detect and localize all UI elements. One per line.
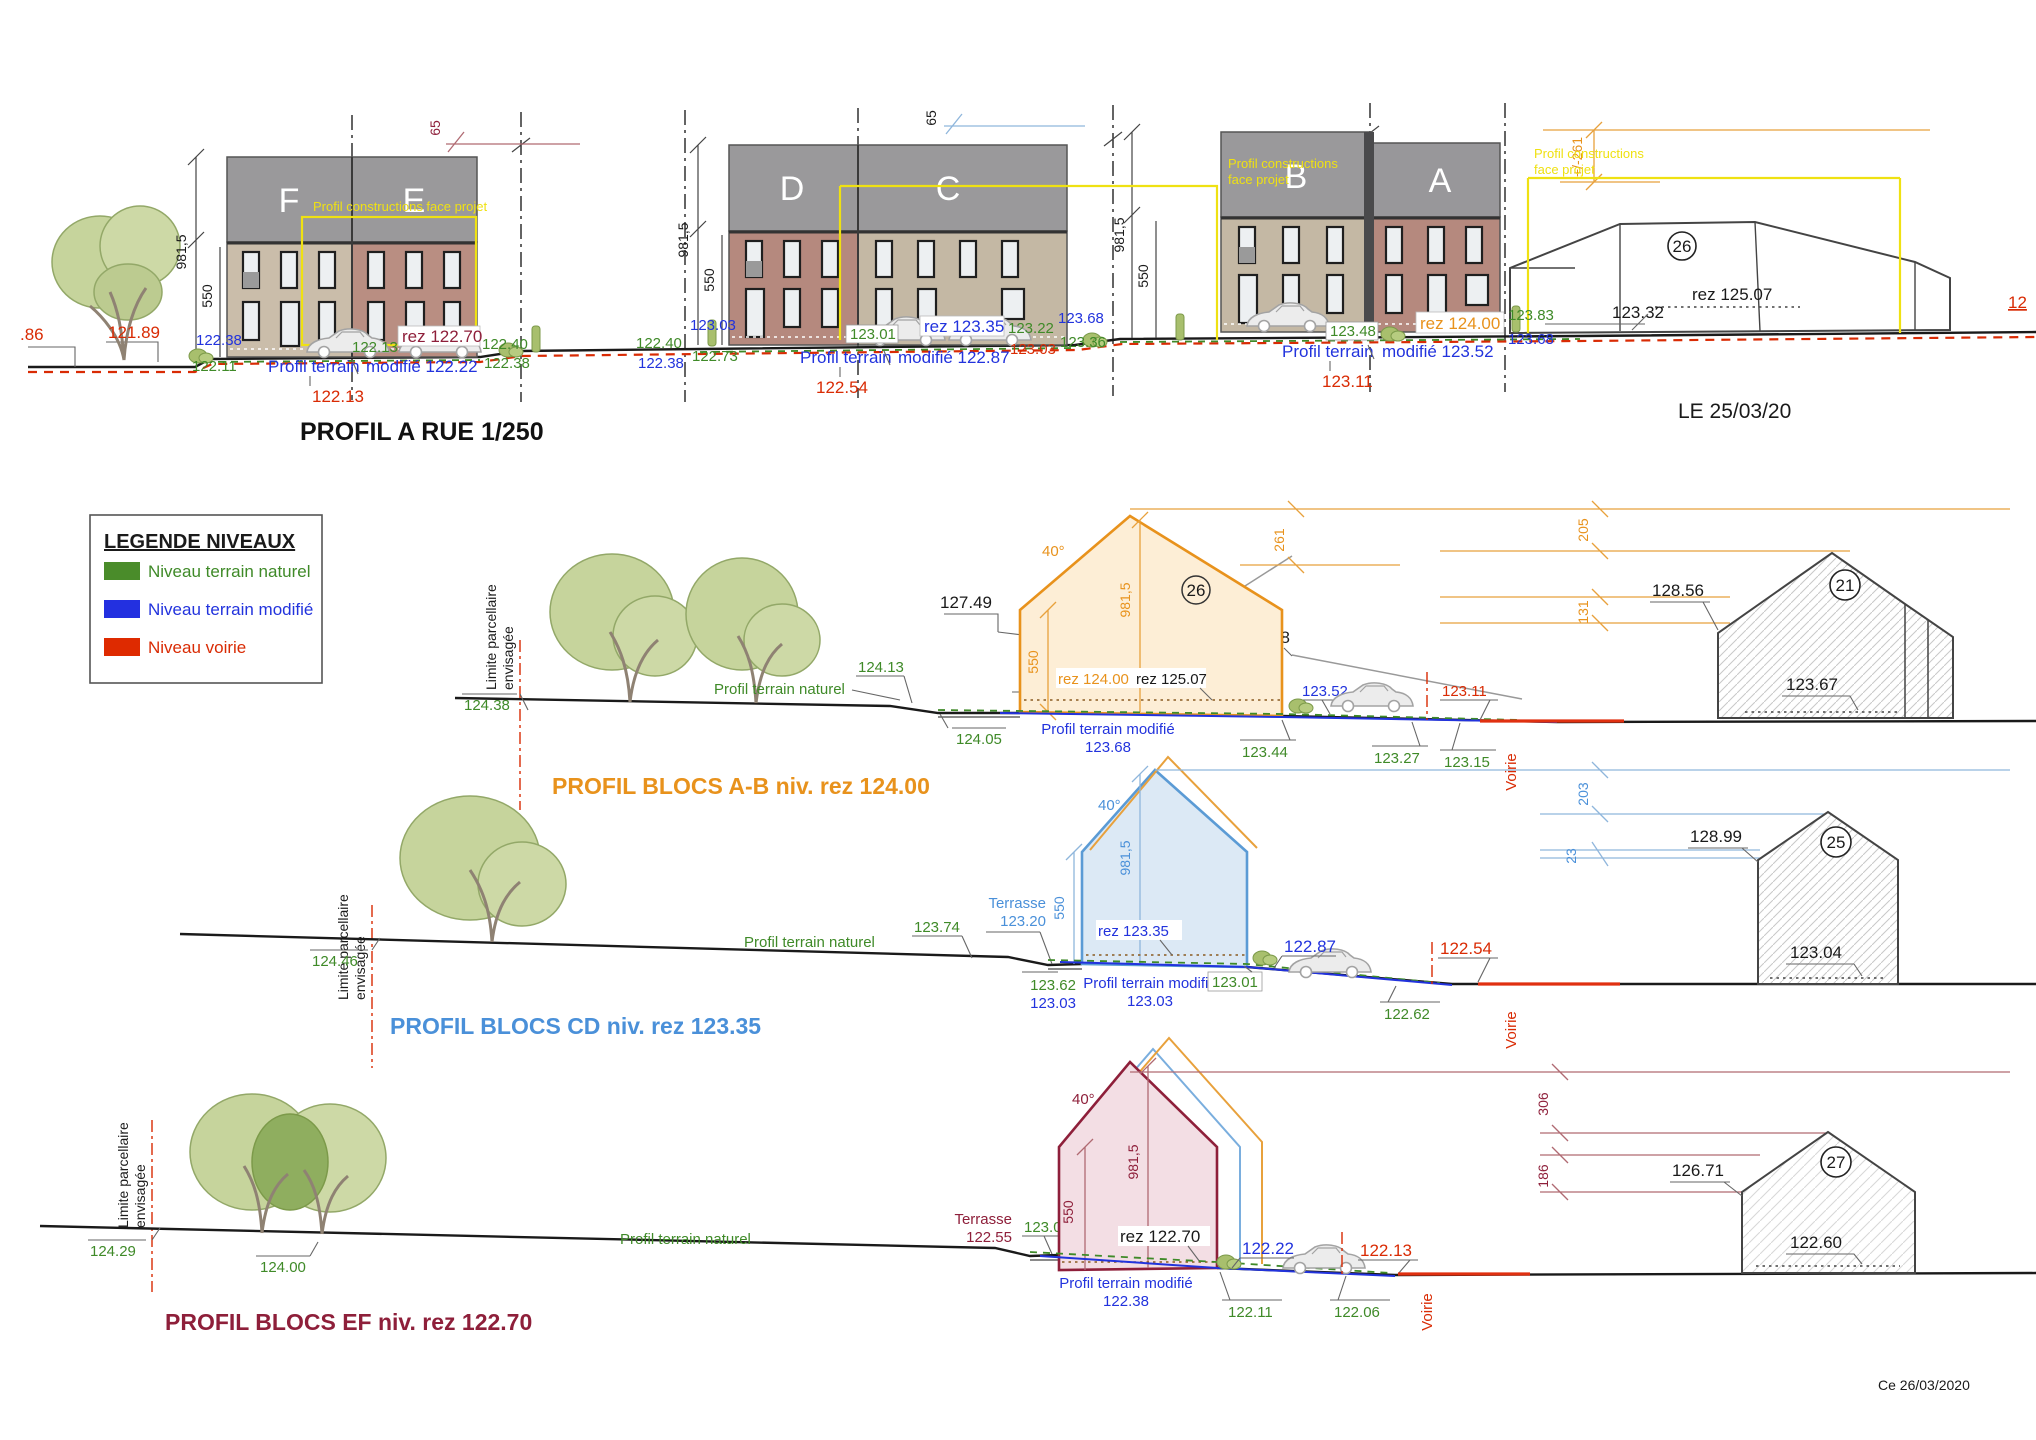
- svg-text:Terrasse: Terrasse: [988, 895, 1046, 912]
- svg-text:123.74: 123.74: [914, 919, 960, 936]
- lvl-123-11-ab: 123.11: [1440, 683, 1498, 720]
- rez-fe: rez 122.70: [398, 326, 482, 346]
- svg-text:261: 261: [1271, 528, 1287, 552]
- svg-text:203: 203: [1575, 782, 1591, 806]
- dim-dc: 981,5 550: [675, 137, 722, 345]
- svg-text:rez 123.35: rez 123.35: [924, 317, 1004, 336]
- lvl-121-89: 121.89: [108, 323, 160, 342]
- street-title: PROFIL A RUE 1/250: [300, 418, 544, 446]
- svg-text:124.13: 124.13: [858, 659, 904, 676]
- house-26-rez: rez 125.07: [1692, 285, 1772, 304]
- lvl-122-13-ef: 122.13: [1358, 1241, 1418, 1274]
- legend-swatch-voirie: [104, 638, 140, 656]
- profile-cd-title: PROFIL BLOCS CD niv. rez 123.35: [390, 1013, 761, 1039]
- dim-9815-dc: 981,5: [675, 222, 691, 257]
- house-ab-number: 26: [1187, 581, 1206, 600]
- profile-ab-title: PROFIL BLOCS A-B niv. rez 124.00: [552, 773, 930, 799]
- terrain-mod-ba-1: Profil terrain: [1282, 342, 1374, 361]
- construction-label-fe: Profil constructions face projet: [313, 199, 488, 214]
- house-ef: 40° 550 981,5 rez 122.70: [1059, 1038, 1262, 1270]
- legend-title: LEGENDE NIVEAUX: [104, 531, 296, 553]
- bush: [1289, 699, 1313, 713]
- svg-text:124.46: 124.46: [312, 953, 358, 970]
- profile-ab: Limite parcellaire envisagée 124.38 Prof…: [455, 501, 2036, 810]
- dim-550-cd: 550: [1051, 896, 1067, 920]
- svg-text:23: 23: [1563, 848, 1579, 864]
- lvl-123-83: 123.83: [1508, 307, 1554, 324]
- svg-text:face projet: face projet: [1228, 172, 1289, 187]
- tree-ab-1: [550, 554, 697, 702]
- dim-fe: 981,5 550: [173, 149, 220, 357]
- svg-text:123.03: 123.03: [1030, 995, 1076, 1012]
- house-26-number: 26: [1673, 237, 1692, 256]
- house-21: 21 128.56 123.67: [1650, 553, 1953, 718]
- profile-cd: Limite parcellaire envisagée 124.46 Prof…: [180, 757, 2036, 1068]
- car-ef: [1283, 1245, 1365, 1274]
- legend-swatch-modifie: [104, 600, 140, 618]
- legend-item-modifie: Niveau terrain modifié: [148, 600, 313, 619]
- legend-swatch-naturel: [104, 562, 140, 580]
- legend-item-voirie: Niveau voirie: [148, 638, 246, 657]
- terrain-mod-ba-2: modifié 123.52: [1382, 342, 1494, 361]
- svg-text:122.13: 122.13: [1360, 1241, 1412, 1260]
- lvl-124-05: 124.05: [940, 714, 1006, 748]
- voirie-ab: Voirie: [1503, 753, 1520, 791]
- svg-text:122.38: 122.38: [1103, 1293, 1149, 1310]
- svg-text:122.62: 122.62: [1384, 1006, 1430, 1023]
- svg-text:Profil terrain modifié: Profil terrain modifié: [1059, 1275, 1192, 1292]
- svg-text:123.01: 123.01: [850, 326, 896, 343]
- svg-text:306: 306: [1535, 1092, 1551, 1116]
- lvl-122-13-g: 122.13: [352, 339, 398, 356]
- lvl-123-74: 123.74: [912, 919, 972, 958]
- angle-ab: 40°: [1042, 543, 1065, 560]
- svg-text:Limite parcellaire: Limite parcellaire: [335, 894, 351, 1000]
- dim-550-fe: 550: [199, 284, 215, 308]
- lvl-123-27: 123.27: [1372, 722, 1428, 767]
- dim-65-fe: 65: [427, 120, 580, 152]
- svg-text:122.54: 122.54: [1440, 939, 1492, 958]
- terrain-modifie-cd: Profil terrain modifié 123.03: [1083, 975, 1216, 1010]
- dim-9815-fe: 981,5: [173, 234, 189, 269]
- svg-text:124.29: 124.29: [90, 1243, 136, 1260]
- svg-text:123.62: 123.62: [1030, 977, 1076, 994]
- house-ab: 40° 550 981,5 26 rez 124.00 rez 125.07: [1020, 512, 1282, 720]
- svg-text:123.44: 123.44: [1242, 744, 1288, 761]
- lvl-122-38-b: 122.38: [196, 332, 242, 349]
- lvl-123-44: 123.44: [1240, 720, 1296, 761]
- terrain-mod-fe-1: Profil terrain: [268, 357, 360, 376]
- construction-label-26: Profil constructions face projet: [1534, 146, 1644, 177]
- block-d-label: D: [780, 170, 805, 208]
- svg-text:122.11: 122.11: [1228, 1304, 1273, 1321]
- lvl-122-40-2: 122.40: [636, 335, 682, 352]
- block-a-label: A: [1429, 162, 1452, 200]
- svg-text:205: 205: [1575, 518, 1591, 542]
- house-25: 25 128.99 123.04: [1688, 812, 1898, 984]
- svg-text:122.55: 122.55: [966, 1229, 1012, 1246]
- lvl-122-13-r: 122.13: [312, 387, 364, 406]
- lvl-123-62-03: 123.62 123.03: [1022, 972, 1076, 1012]
- svg-text:rez 124.00: rez 124.00: [1420, 314, 1500, 333]
- terrain-mod-fe-2: modifié 122.22: [366, 357, 478, 376]
- rez-ba: rez 124.00: [1416, 312, 1504, 333]
- svg-text:123.27: 123.27: [1374, 750, 1420, 767]
- svg-text:face projet: face projet: [1534, 162, 1595, 177]
- building-dc: D C: [729, 145, 1067, 345]
- dim-9815-ab: 981,5: [1117, 582, 1133, 617]
- svg-text:Terrasse: Terrasse: [954, 1211, 1012, 1228]
- svg-text:Profil constructions: Profil constructions: [1228, 156, 1338, 171]
- profile-ef: Limite parcellaire envisagée 124.29 124.…: [40, 1038, 2036, 1335]
- lvl-123-15: 123.15: [1440, 723, 1496, 771]
- lvl-124-38: 124.38: [462, 694, 528, 714]
- lvl-124-29: 124.29: [88, 1228, 160, 1260]
- tree-cd: [400, 796, 566, 942]
- lvl-122-54: 122.54: [1438, 939, 1498, 982]
- lvl-124-00: 124.00: [256, 1242, 318, 1276]
- house-27-top: 126.71: [1672, 1161, 1724, 1180]
- terrasse-ef: Terrasse 122.55: [954, 1211, 1012, 1246]
- terrain-naturel-ab: Profil terrain naturel: [714, 681, 845, 698]
- house-21-top: 128.56: [1652, 581, 1704, 600]
- svg-text:Profil terrain modifié: Profil terrain modifié: [1041, 721, 1174, 738]
- svg-text:124.00: 124.00: [260, 1259, 306, 1276]
- lvl-123-01-cd: 123.01: [1208, 966, 1262, 991]
- lvl-cut: .86: [20, 325, 44, 344]
- svg-text:124.05: 124.05: [956, 731, 1002, 748]
- svg-text:123.03: 123.03: [1127, 993, 1173, 1010]
- shrub: [532, 326, 540, 352]
- dim-550-ba: 550: [1135, 264, 1151, 288]
- dim-ba: 981,5 550: [1111, 124, 1156, 338]
- svg-text:123.20: 123.20: [1000, 913, 1046, 930]
- house-27-number: 27: [1827, 1153, 1846, 1172]
- legend-item-naturel: Niveau terrain naturel: [148, 562, 311, 581]
- lvl-122-40: 122.40: [482, 336, 528, 353]
- dim-550-ab: 550: [1025, 650, 1041, 674]
- svg-text:122.06: 122.06: [1334, 1304, 1380, 1321]
- svg-text:65: 65: [427, 120, 443, 136]
- profile-ef-title: PROFIL BLOCS EF niv. rez 122.70: [165, 1309, 532, 1335]
- bush: [1253, 951, 1277, 965]
- svg-text:124.38: 124.38: [464, 697, 510, 714]
- svg-text:122.87: 122.87: [1284, 937, 1336, 956]
- svg-text:envisagée: envisagée: [500, 626, 516, 690]
- svg-text:Profil terrain modifié: Profil terrain modifié: [1083, 975, 1216, 992]
- angle-ef: 40°: [1072, 1091, 1095, 1108]
- drawing-canvas: 981,5 550 981,5 550 981,5 550 65 65 +/-2…: [0, 0, 2036, 1440]
- svg-text:Limite parcellaire: Limite parcellaire: [483, 584, 499, 690]
- trees-ef: [190, 1094, 386, 1234]
- lvl-123-36: 123.36: [1060, 334, 1106, 351]
- svg-text:123.01: 123.01: [1212, 974, 1258, 991]
- lvl-122-73: 122.73: [692, 348, 738, 365]
- svg-text:Limite parcellaire: Limite parcellaire: [115, 1122, 131, 1228]
- house-27: 27 126.71 122.60: [1670, 1132, 1915, 1273]
- lvl-122-38-2: 122.38: [638, 355, 684, 372]
- voirie-cd: Voirie: [1503, 1011, 1520, 1049]
- house-25-top: 128.99: [1690, 827, 1742, 846]
- house-21-number: 21: [1836, 576, 1855, 595]
- svg-text:186: 186: [1535, 1164, 1551, 1188]
- block-f-label: F: [279, 182, 300, 220]
- lvl-123-11: 123.11: [1322, 372, 1373, 391]
- terrain-mod-dc-1: Profil terrain: [800, 348, 892, 367]
- dim-9815-ba: 981,5: [1111, 217, 1127, 252]
- architectural-profile-sheet: 981,5 550 981,5 550 981,5 550 65 65 +/-2…: [0, 0, 2036, 1440]
- svg-text:123.15: 123.15: [1444, 754, 1490, 771]
- svg-text:rez 123.35: rez 123.35: [1098, 923, 1169, 940]
- house-26-level: 123.32: [1612, 303, 1664, 322]
- house-27-floor: 122.60: [1790, 1233, 1842, 1252]
- lvl-123-68-1: 123.68: [1058, 310, 1104, 327]
- dim-550-dc: 550: [701, 268, 717, 292]
- lvl-123-01: 123.01: [846, 325, 898, 343]
- house-21-floor: 123.67: [1786, 675, 1838, 694]
- svg-text:rez 124.00: rez 124.00: [1058, 671, 1129, 688]
- sheet-date: LE 25/03/20: [1678, 400, 1791, 423]
- house-25-number: 25: [1827, 833, 1846, 852]
- voirie-ef: Voirie: [1419, 1293, 1436, 1331]
- terrain-naturel-cd: Profil terrain naturel: [744, 934, 875, 951]
- lvl-122-06: 122.06: [1330, 1276, 1390, 1321]
- footer-date: Ce 26/03/2020: [1878, 1377, 1970, 1393]
- dim-9815-cd: 981,5: [1117, 840, 1133, 875]
- limite-parcellaire-cd: Limite parcellaire envisagée: [335, 894, 372, 1068]
- house-26-street: 26 rez 125.07 123.32: [1510, 222, 1950, 333]
- lvl-123-68-2: 123.68: [1508, 331, 1554, 348]
- legend: LEGENDE NIVEAUX Niveau terrain naturel N…: [90, 515, 322, 683]
- terrain-mod-dc-2: modifié 122.87: [898, 348, 1010, 367]
- svg-text:131: 131: [1575, 600, 1591, 624]
- svg-text:rez 125.07: rez 125.07: [1136, 671, 1207, 688]
- lvl-right-cut: 12: [2008, 293, 2027, 312]
- lvl-122-54: 122.54: [816, 378, 868, 397]
- street-elevation: 981,5 550 981,5 550 981,5 550 65 65 +/-2…: [20, 103, 2036, 446]
- dim-550-ef: 550: [1060, 1200, 1076, 1224]
- terrain-naturel-ef: Profil terrain naturel: [620, 1231, 751, 1248]
- svg-text:rez 122.70: rez 122.70: [1120, 1227, 1200, 1246]
- lvl-122-62: 122.62: [1380, 986, 1440, 1023]
- rez-dc: rez 123.35: [920, 316, 1004, 336]
- svg-text:rez 122.70: rez 122.70: [402, 327, 482, 346]
- svg-text:envisagée: envisagée: [132, 1164, 148, 1228]
- svg-text:65: 65: [923, 110, 939, 126]
- shrub: [1176, 314, 1184, 340]
- dim-65-dc: 65: [923, 110, 1085, 134]
- limite-parcellaire-ef: Limite parcellaire envisagée: [115, 1120, 152, 1292]
- svg-text:123.68: 123.68: [1085, 739, 1131, 756]
- lvl-123-48: 123.48: [1326, 322, 1378, 340]
- terrain-modifie-ef: Profil terrain modifié 122.38: [1059, 1275, 1192, 1310]
- terrasse-cd: Terrasse 123.20: [986, 895, 1052, 964]
- terrain-modifie-ab: Profil terrain modifié 123.68: [1041, 721, 1174, 756]
- dim-9815-ef: 981,5: [1125, 1144, 1141, 1179]
- svg-text:127.49: 127.49: [940, 593, 992, 612]
- angle-cd: 40°: [1098, 797, 1121, 814]
- lvl-122-11: 122.11: [1220, 1272, 1282, 1321]
- lvl-123-03-b: 123.03: [690, 317, 736, 334]
- block-c-label: C: [936, 170, 961, 208]
- lvl-123-22: 123.22: [1008, 320, 1054, 337]
- svg-text:Profil constructions: Profil constructions: [1534, 146, 1644, 161]
- lvl-122-11: 122.11: [192, 358, 237, 375]
- svg-text:122.22: 122.22: [1242, 1239, 1294, 1258]
- svg-text:123.48: 123.48: [1330, 323, 1376, 340]
- house-25-floor: 123.04: [1790, 943, 1842, 962]
- lvl-123-03-r: 123.03: [1010, 341, 1056, 358]
- house-cd: 40° 550 981,5 rez 123.35: [1051, 757, 1257, 967]
- lvl-122-38-g: 122.38: [484, 355, 530, 372]
- svg-text:123.11: 123.11: [1442, 683, 1487, 700]
